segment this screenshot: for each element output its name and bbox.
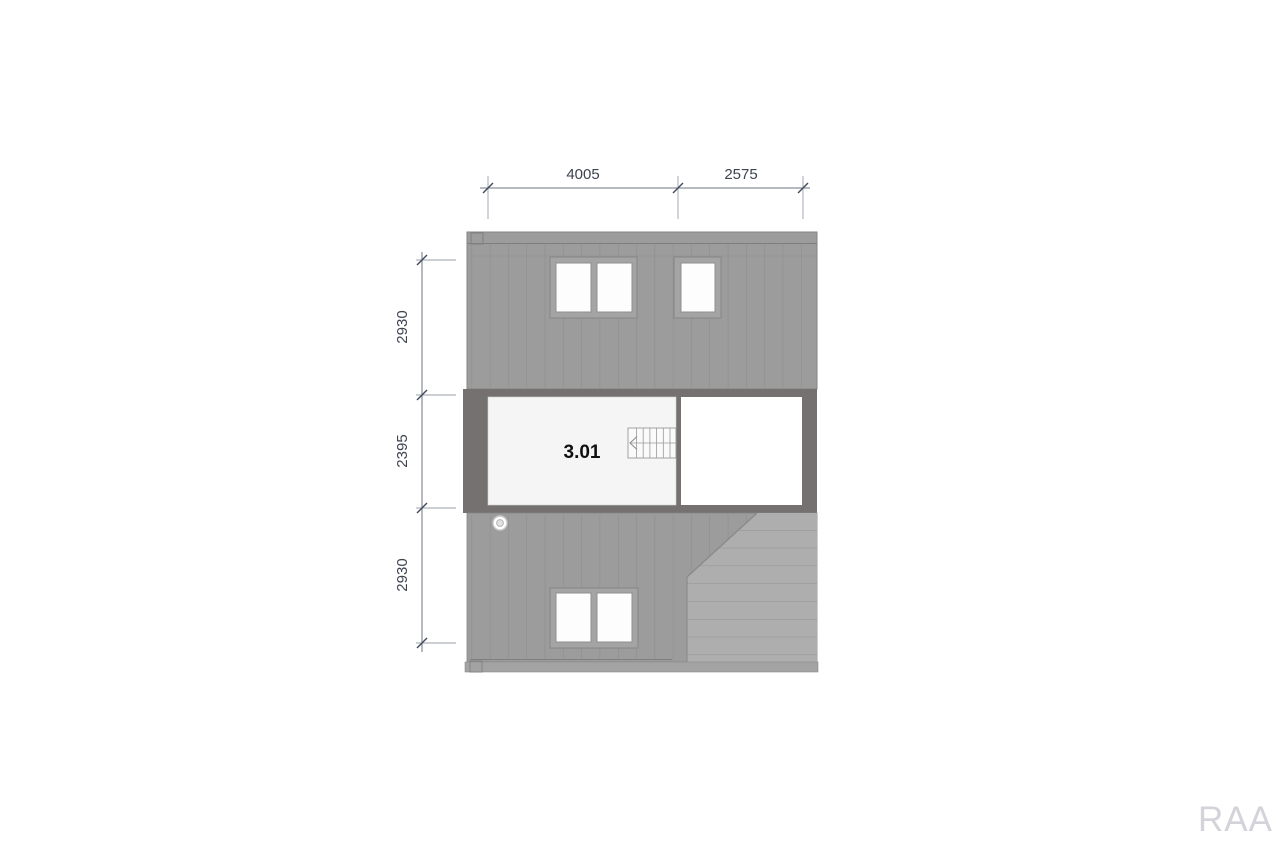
dimension-label-width-2: 2575 bbox=[724, 166, 757, 183]
floor-plan-elevation-drawing: 4005 2575 2930 2395 2930 bbox=[0, 0, 1280, 853]
window-pane bbox=[556, 593, 591, 642]
stair-plan-symbol bbox=[628, 428, 676, 458]
upper-elevation bbox=[467, 232, 817, 389]
dimension-label-height-2: 2395 bbox=[394, 434, 411, 467]
room-right-floor bbox=[681, 397, 802, 505]
dimension-chain-left: 2930 2395 2930 bbox=[394, 252, 456, 652]
dimension-label-height-1: 2930 bbox=[394, 310, 411, 343]
window-pane bbox=[597, 593, 632, 642]
architectural-drawing-page: 4005 2575 2930 2395 2930 bbox=[0, 0, 1280, 853]
window-pane bbox=[681, 263, 715, 312]
upper-wall-cladding bbox=[467, 244, 817, 389]
room-number-label: 3.01 bbox=[564, 442, 601, 463]
lower-window-double bbox=[550, 588, 638, 648]
window-pane bbox=[597, 263, 632, 312]
upper-window-double bbox=[550, 257, 637, 318]
floor-plan-band: 3.01 bbox=[463, 389, 817, 513]
watermark-logo: RAA bbox=[1198, 800, 1273, 839]
wall-light-icon bbox=[493, 516, 507, 530]
dimension-label-width-1: 4005 bbox=[566, 166, 599, 183]
dimension-label-height-3: 2930 bbox=[394, 558, 411, 591]
lower-elevation bbox=[465, 513, 818, 672]
window-pane bbox=[556, 263, 591, 312]
dimension-chain-top: 4005 2575 bbox=[480, 166, 810, 219]
wall-light-center bbox=[497, 520, 504, 527]
upper-window-single bbox=[674, 257, 721, 318]
plinth-band bbox=[465, 662, 818, 672]
